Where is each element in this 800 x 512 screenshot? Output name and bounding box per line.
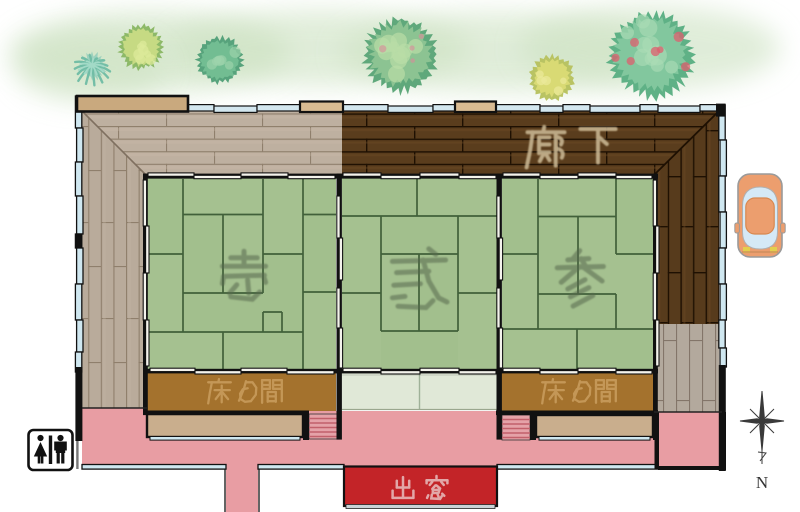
svg-text:N: N [756,473,768,492]
